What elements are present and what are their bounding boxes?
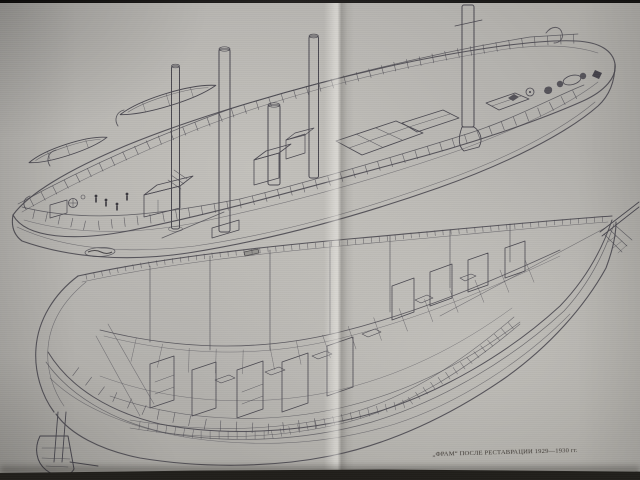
hull-side-edge — [12, 64, 615, 258]
tween-deck-line2 — [104, 256, 560, 352]
photographed-book-plate: „ФРАМ“ ПОСЛЕ РЕСТАВРАЦИИ 1929—1930 гг. — [0, 0, 640, 480]
floor-line2 — [100, 308, 512, 401]
companionway — [254, 128, 314, 185]
bulwark-stanchions — [73, 368, 316, 434]
photo-edge-top — [0, 0, 640, 3]
bilge-frames — [139, 323, 513, 440]
wale-line — [17, 102, 595, 250]
stern-brace — [96, 324, 154, 416]
boat-davits — [24, 27, 563, 209]
masts — [162, 5, 482, 238]
lifeboat — [27, 132, 108, 168]
near-rail — [22, 85, 584, 216]
engine-skylight — [486, 93, 529, 110]
mast-foot — [459, 127, 481, 151]
lifeboat — [118, 79, 217, 120]
crosstree — [455, 20, 482, 26]
cutaway-rim-inner — [82, 222, 608, 282]
stern-profile — [36, 276, 78, 412]
main-mast — [219, 49, 230, 232]
funnel — [268, 105, 280, 185]
deckhouse — [144, 176, 193, 217]
fram-ship-drawings — [0, 0, 640, 480]
hold-pillars — [150, 224, 510, 350]
bulwark-inner-line — [24, 82, 598, 232]
hatch — [402, 110, 459, 132]
bilge-wale — [50, 314, 570, 443]
crew-figures — [95, 193, 129, 211]
skylight-grid — [336, 121, 423, 155]
companion-stairs — [168, 170, 187, 189]
far-rail-stanchions — [30, 34, 574, 206]
hull-cutaway-drawing — [36, 202, 639, 476]
deck-outline — [13, 41, 615, 237]
keel-line — [56, 222, 616, 465]
deck-view-drawing — [12, 5, 615, 258]
mast — [309, 36, 319, 178]
hold-furniture — [215, 274, 476, 383]
far-rail — [18, 34, 578, 204]
